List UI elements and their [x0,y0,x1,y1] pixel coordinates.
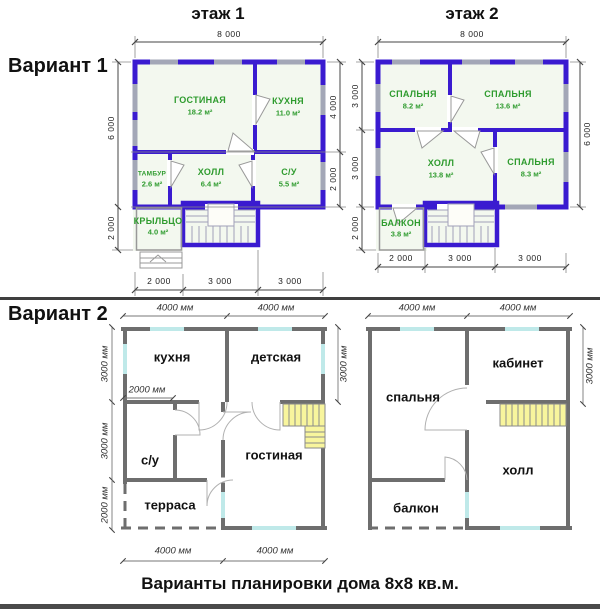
v2f1-plan [112,316,338,561]
room-label: кухня [154,350,191,365]
room-label: ХОЛЛ [198,167,224,177]
dim-label: 2000 мм [129,385,166,396]
dim-label: 4000 мм [155,546,192,557]
room-label: балкон [393,501,439,516]
dim-label: 3000 мм [100,423,111,460]
room-area: 13.6 м² [496,102,521,111]
room-area: 3.8 м² [391,230,412,239]
dim-label: 4000 мм [157,303,194,314]
v2f2-stairs [500,404,566,426]
room-area: 11.0 м² [276,109,300,118]
variant2-label: Вариант 2 [8,303,108,326]
room-label: терраса [144,498,195,513]
room-area: 6.4 м² [201,180,222,189]
room-area: 2.6 м² [142,180,163,189]
dim-label: 3000 мм [585,348,596,385]
room-area: 4.0 м² [148,228,169,237]
dim-label: 3 000 [518,253,542,263]
dim-label: 6 000 [582,122,592,146]
dim-label: 3 000 [448,253,472,263]
room-label: СПАЛЬНЯ [389,89,436,99]
floor1-title: этаж 1 [191,4,244,24]
dim-label: 3 000 [208,276,232,286]
dim-label: 4000 мм [258,303,295,314]
variants-divider [0,297,600,300]
room-label: гостиная [245,448,302,463]
room-area: 8.2 м² [403,102,424,111]
dim-label: 4000 мм [500,303,537,314]
room-area: 13.8 м² [429,171,454,180]
floor2-title: этаж 2 [445,4,498,24]
dim-label: 2 000 [350,216,360,240]
dim-label: 2 000 [389,253,413,263]
room-label: СПАЛЬНЯ [484,89,531,99]
room-label: СПАЛЬНЯ [507,157,554,167]
dim-label: 3000 мм [339,346,350,383]
dim-label: 4 000 [328,95,338,119]
room-area: 8.3 м² [521,170,542,179]
variant1-label: Вариант 1 [8,55,108,78]
room-label: спальня [386,390,440,405]
dim-label: 2 000 [328,167,338,191]
bottom-border [0,604,600,609]
dim-label: 2 000 [106,216,116,240]
room-label: КРЫЛЬЦО [134,216,183,226]
dim-label: 3000 мм [100,346,111,383]
dim-label: 4000 мм [257,546,294,557]
room-label: ХОЛЛ [428,158,454,168]
room-label: холл [502,463,533,478]
dim-label: 3 000 [350,84,360,108]
room-label: С/У [281,167,297,177]
room-label: детская [251,350,301,365]
room-area: 5.5 м² [279,180,300,189]
dim-label: 3 000 [350,156,360,180]
v1f1-plan [112,36,346,296]
dim-label: 2 000 [147,276,171,286]
room-label: с/у [141,453,159,468]
room-label: кабинет [492,356,543,371]
dim-label: 3 000 [278,276,302,286]
dim-label: 6 000 [106,116,116,140]
sheet-caption: Варианты планировки дома 8х8 кв.м. [141,574,459,594]
floorplan-sheet: этаж 1 этаж 2 Вариант 1 Вариант 2 Вариан… [0,0,600,609]
room-label: КУХНЯ [272,96,304,106]
dim-label: 8 000 [460,29,484,39]
room-label: ТАМБУР [138,171,166,178]
dim-label: 8 000 [217,29,241,39]
dim-label: 4000 мм [399,303,436,314]
room-label: БАЛКОН [381,218,421,228]
room-area: 18.2 м² [188,108,213,117]
room-label: ГОСТИНАЯ [174,95,226,105]
dim-label: 2000 мм [100,487,111,524]
